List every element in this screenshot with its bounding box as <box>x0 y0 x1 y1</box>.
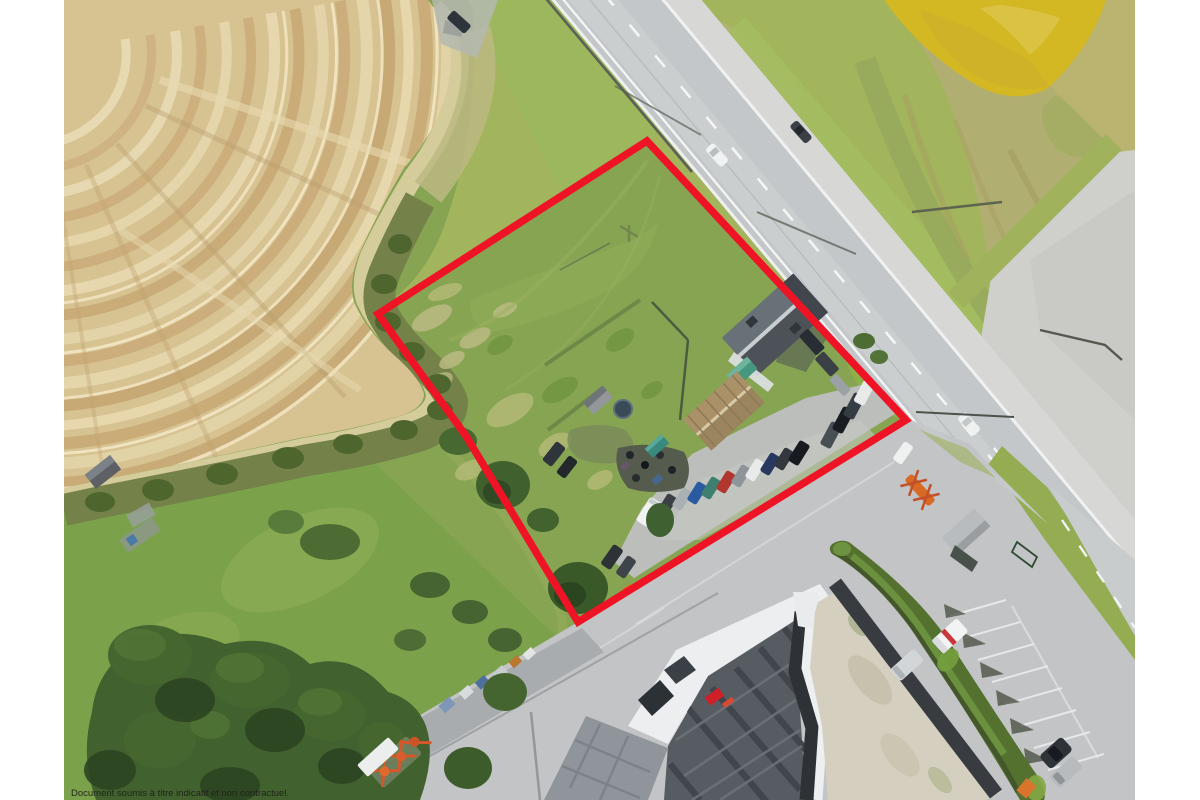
svg-text:Document soumis à titre indica: Document soumis à titre indicatif et non… <box>71 788 289 799</box>
